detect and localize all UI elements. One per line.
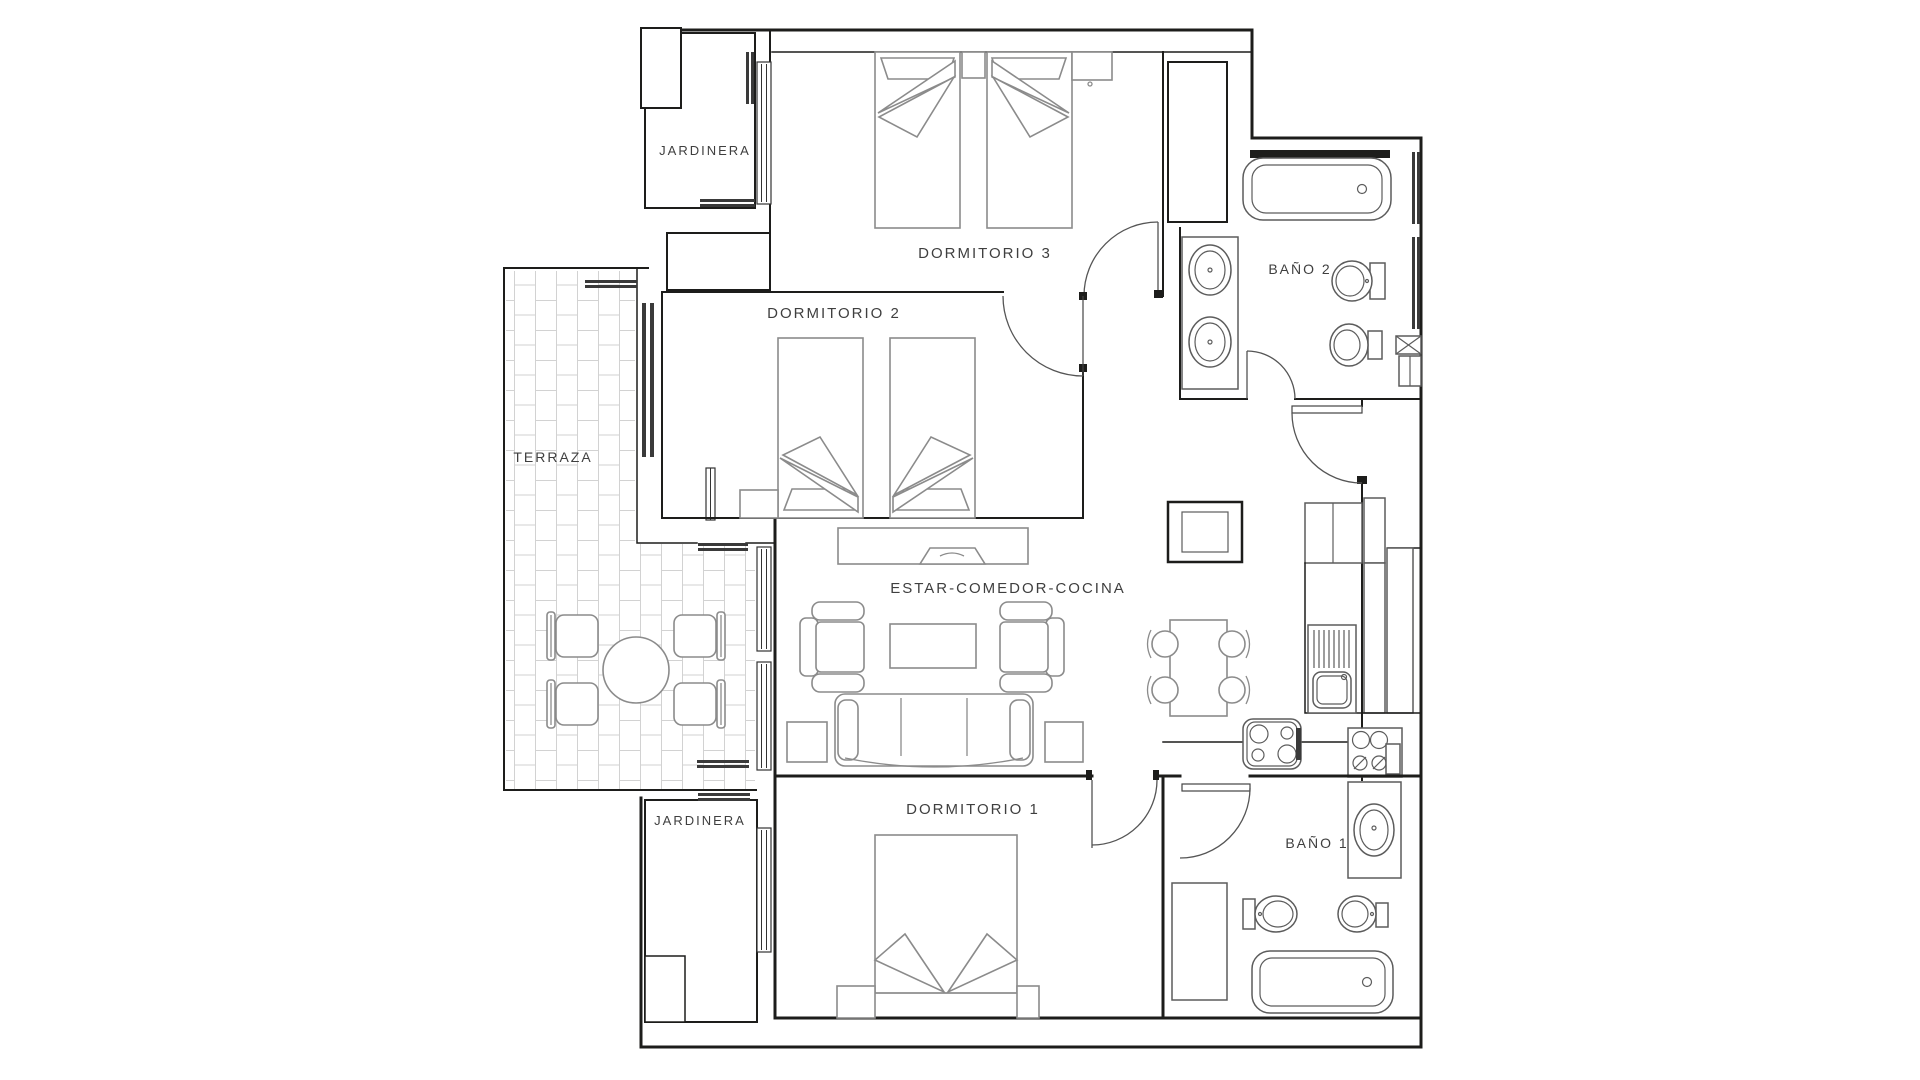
armchair-right — [1000, 602, 1064, 692]
toilet — [1332, 261, 1385, 301]
label-estar: ESTAR-COMEDOR-COCINA — [890, 580, 1126, 597]
nightstand — [740, 490, 778, 518]
side-table — [787, 722, 827, 762]
entrance-door-arc — [1292, 413, 1362, 483]
fridge — [1364, 498, 1385, 563]
hob — [1243, 719, 1301, 769]
door-arc-bathroom2 — [1247, 351, 1295, 399]
bedroom-1: DORMITORIO 1 — [837, 780, 1157, 1018]
wardrobe — [667, 233, 770, 290]
label-dormitorio-1: DORMITORIO 1 — [906, 801, 1040, 818]
tv-cabinet — [838, 528, 1028, 564]
floor-plan-canvas: JARDINERA TERRAZA — [0, 0, 1920, 1080]
terrace-chair-4 — [674, 680, 725, 728]
duct-shaft — [1396, 336, 1421, 386]
bedroom-3: DORMITORIO 3 — [875, 52, 1163, 298]
coffee-table — [890, 624, 976, 668]
bathroom-1: BAÑO 1 — [1172, 782, 1401, 1013]
closet-column — [1168, 62, 1227, 222]
counter-right — [1387, 548, 1413, 713]
label-terraza: TERRAZA — [513, 449, 592, 465]
living-room: ESTAR-COMEDOR-COCINA — [787, 528, 1126, 767]
hall-shaft — [1168, 502, 1242, 562]
floor-plan-drawing: JARDINERA TERRAZA — [0, 0, 1920, 1080]
side-table — [1045, 722, 1083, 762]
bedroom-2: DORMITORIO 2 — [585, 233, 1087, 518]
planter-top: JARDINERA — [641, 28, 755, 208]
bed-single — [890, 338, 975, 518]
terrace-chair-3 — [674, 612, 725, 660]
bathroom-2: BAÑO 2 — [1168, 62, 1421, 399]
nightstand — [837, 986, 875, 1018]
double-bed — [875, 835, 1017, 993]
door-arc-bedroom1 — [1092, 780, 1157, 845]
label-dormitorio-2: DORMITORIO 2 — [767, 305, 901, 322]
label-bano-2: BAÑO 2 — [1268, 261, 1331, 277]
laundry-appliance — [1348, 728, 1402, 777]
kitchen-sink — [1308, 625, 1356, 713]
nightstand — [1017, 986, 1039, 1018]
label-bano-1: BAÑO 1 — [1285, 835, 1348, 851]
dining-chair — [1219, 676, 1250, 704]
bed-single — [875, 52, 960, 228]
toilet — [1243, 896, 1297, 932]
label-jardinera-top: JARDINERA — [659, 143, 751, 158]
dining-chair — [1148, 676, 1179, 704]
terrace-table — [603, 637, 669, 703]
dining-chair — [1219, 630, 1250, 658]
door-arc-bedroom2 — [1003, 296, 1083, 376]
double-sink-vanity — [1182, 237, 1238, 389]
bidet — [1330, 324, 1382, 366]
terrace: TERRAZA — [504, 268, 775, 790]
entrance-door-leaf — [1292, 406, 1362, 413]
door-arc-bathroom1 — [1180, 788, 1250, 858]
dining-chair — [1148, 630, 1179, 658]
bed-single — [987, 52, 1072, 228]
door-leaf-bathroom1 — [1182, 784, 1250, 791]
label-jardinera-bottom: JARDINERA — [654, 813, 746, 828]
nightstand — [962, 52, 985, 78]
door-arc-bedroom3 — [1084, 222, 1158, 296]
nightstand — [1072, 52, 1112, 80]
sink-vanity — [1348, 782, 1401, 878]
planter-bottom: JARDINERA — [645, 760, 757, 1022]
terrace-chair-2 — [547, 680, 598, 728]
bathtub — [1243, 158, 1391, 220]
terrace-chair-1 — [547, 612, 598, 660]
armchair-left — [800, 602, 864, 692]
dining-table — [1170, 620, 1227, 716]
counter-column — [1364, 563, 1385, 713]
bathtub — [1252, 951, 1393, 1013]
bidet — [1338, 896, 1388, 932]
shower-closet — [1172, 883, 1227, 1000]
label-dormitorio-3: DORMITORIO 3 — [918, 245, 1052, 262]
sofa — [835, 694, 1033, 767]
bed-single — [778, 338, 863, 518]
